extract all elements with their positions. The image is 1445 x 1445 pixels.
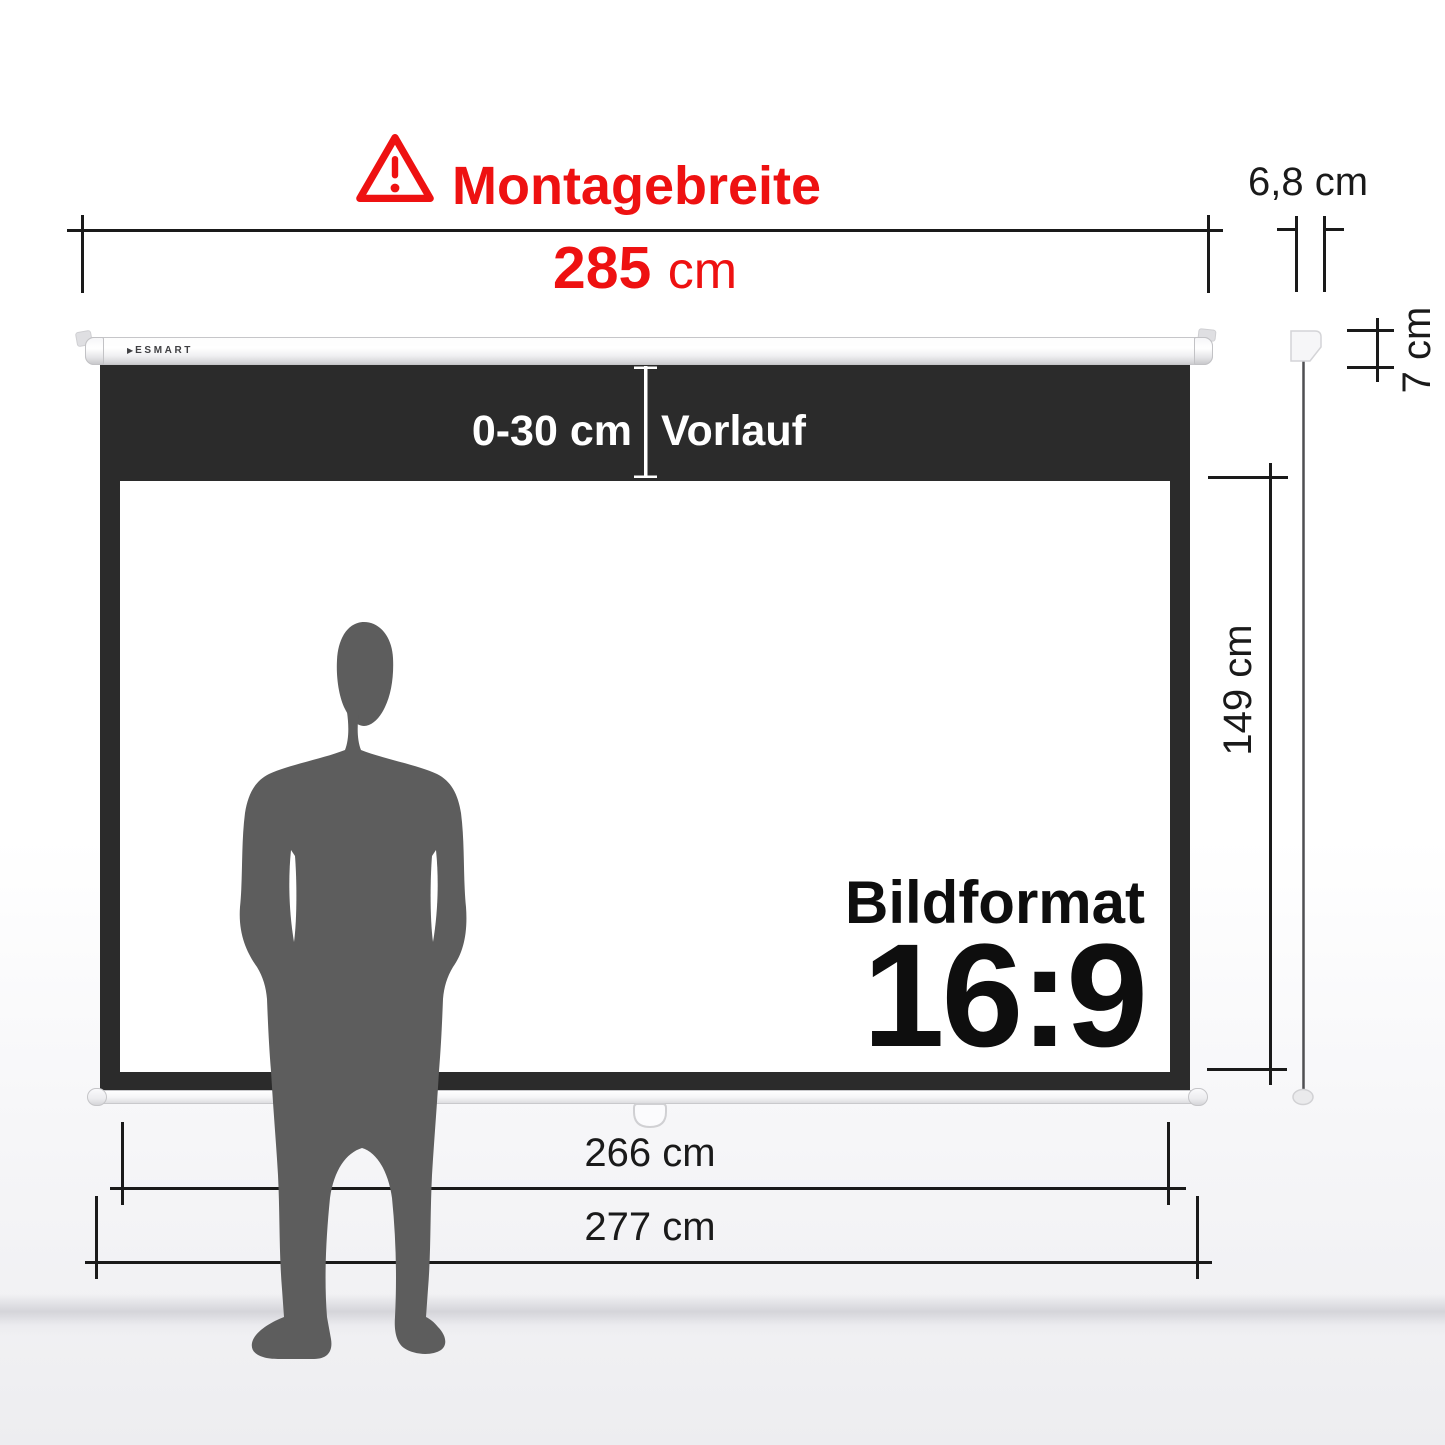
screen-bottom-bar [88, 1090, 1207, 1104]
mount-width-value-label: 285 cm [420, 238, 870, 301]
brand-logo: ▶ESMART [127, 345, 193, 356]
floor-shadow-band [0, 1294, 1445, 1336]
side-view-housing-profile [1291, 331, 1321, 361]
screen-housing-bar: ▶ESMART [85, 337, 1213, 365]
pull-handle [634, 1104, 666, 1127]
warning-icon [355, 130, 435, 206]
brand-arrow-icon: ▶ [127, 346, 133, 355]
aspect-block: Bildformat 16:9 [845, 872, 1145, 1058]
housing-end-cap-right [1194, 337, 1213, 365]
side-view-weight [1293, 1090, 1313, 1105]
warning-exclamation-dot [391, 184, 400, 193]
mount-width-unit: cm [668, 242, 737, 300]
screen-height-dimension [1207, 463, 1288, 1085]
housing-end-cap-left [85, 337, 104, 365]
vorlauf-name-label: Vorlauf [661, 407, 806, 455]
screen-dimension-infographic: ▶ESMART [0, 0, 1445, 1445]
warning-exclamation-bar [392, 156, 398, 178]
bottom-bar-cap-right [1188, 1088, 1208, 1106]
bottom-bar-cap-left [87, 1088, 107, 1106]
warning-title: Montagebreite [452, 157, 821, 215]
viewing-width-label: 266 cm [500, 1131, 800, 1175]
housing-height-label: 7 cm [1395, 270, 1439, 430]
vorlauf-range-label: 0-30 cm [370, 407, 632, 455]
screen-height-label: 149 cm [1216, 610, 1260, 770]
housing-depth-label: 6,8 cm [1208, 160, 1408, 204]
aspect-ratio: 16:9 [845, 934, 1145, 1058]
housing-depth-dimension [1277, 216, 1344, 292]
mount-width-value: 285 [553, 235, 651, 301]
brand-name: ESMART [135, 345, 193, 356]
housing-height-dimension [1347, 318, 1394, 382]
total-width-label: 277 cm [500, 1205, 800, 1249]
